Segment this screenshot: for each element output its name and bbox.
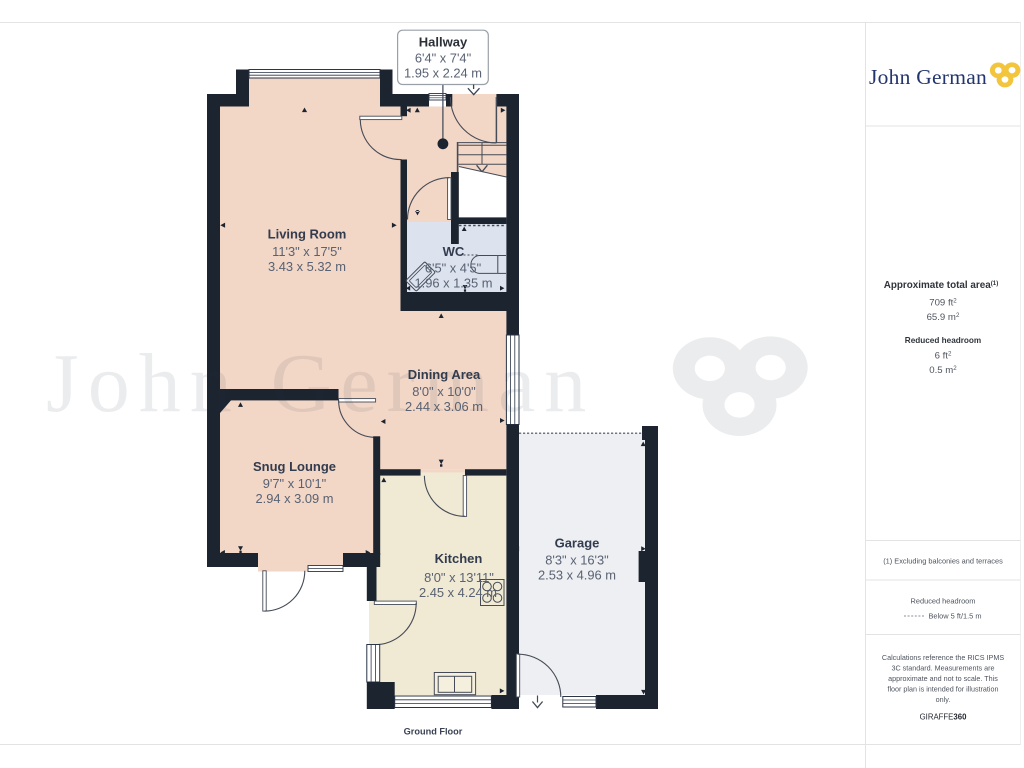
svg-text:approximate and not to scale.: approximate and not to scale. This [888, 674, 998, 683]
svg-text:Kitchen: Kitchen [435, 551, 483, 566]
svg-text:Living Room: Living Room [268, 227, 347, 242]
svg-text:only.: only. [936, 695, 951, 704]
svg-text:Snug Lounge: Snug Lounge [253, 459, 336, 474]
svg-text:Hallway: Hallway [419, 35, 468, 50]
svg-text:2.44 x 3.06 m: 2.44 x 3.06 m [405, 399, 483, 414]
svg-text:floor plan is intended for ill: floor plan is intended for illustration [887, 685, 998, 694]
svg-text:WC: WC [443, 244, 465, 259]
svg-text:John German: John German [46, 337, 595, 430]
svg-text:Dining Area: Dining Area [408, 367, 481, 382]
svg-text:2.53 x 4.96 m: 2.53 x 4.96 m [538, 568, 616, 583]
svg-text:Approximate total area(1): Approximate total area(1) [884, 280, 999, 291]
svg-text:Garage: Garage [555, 536, 600, 551]
svg-text:8'3" x 16'3": 8'3" x 16'3" [545, 553, 609, 568]
svg-text:6'4" x 7'4": 6'4" x 7'4" [415, 51, 472, 66]
svg-text:3.43 x 5.32 m: 3.43 x 5.32 m [268, 259, 346, 274]
svg-text:John German: John German [869, 65, 987, 89]
svg-text:709 ft2: 709 ft2 [929, 297, 957, 308]
svg-text:1.95 x 2.24 m: 1.95 x 2.24 m [404, 66, 482, 81]
svg-text:8'0" x 13'11": 8'0" x 13'11" [424, 570, 494, 585]
svg-text:8'0" x 10'0": 8'0" x 10'0" [412, 384, 476, 399]
svg-text:Reduced headroom: Reduced headroom [911, 597, 976, 606]
svg-text:Calculations reference the RIC: Calculations reference the RICS IPMS [882, 653, 1004, 662]
svg-text:Reduced headroom: Reduced headroom [905, 336, 981, 345]
svg-text:2.94 x 3.09 m: 2.94 x 3.09 m [255, 491, 333, 506]
svg-text:3C standard. Measurements are: 3C standard. Measurements are [891, 664, 994, 673]
svg-text:6'5" x 4'5": 6'5" x 4'5" [425, 261, 482, 276]
svg-text:2.45 x 4.24 m: 2.45 x 4.24 m [419, 585, 497, 600]
svg-text:Ground Floor: Ground Floor [404, 727, 463, 737]
svg-text:GIRAFFE360: GIRAFFE360 [920, 713, 967, 722]
svg-text:9'7" x 10'1": 9'7" x 10'1" [263, 476, 327, 491]
svg-text:Below 5 ft/1.5 m: Below 5 ft/1.5 m [929, 612, 982, 621]
svg-text:0.5 m2: 0.5 m2 [929, 365, 957, 376]
svg-text:1.96 x 1.35 m: 1.96 x 1.35 m [414, 276, 492, 291]
svg-text:65.9 m2: 65.9 m2 [927, 312, 960, 323]
svg-text:(1) Excluding balconies and te: (1) Excluding balconies and terraces [883, 557, 1003, 566]
svg-text:11'3" x 17'5": 11'3" x 17'5" [272, 244, 342, 259]
